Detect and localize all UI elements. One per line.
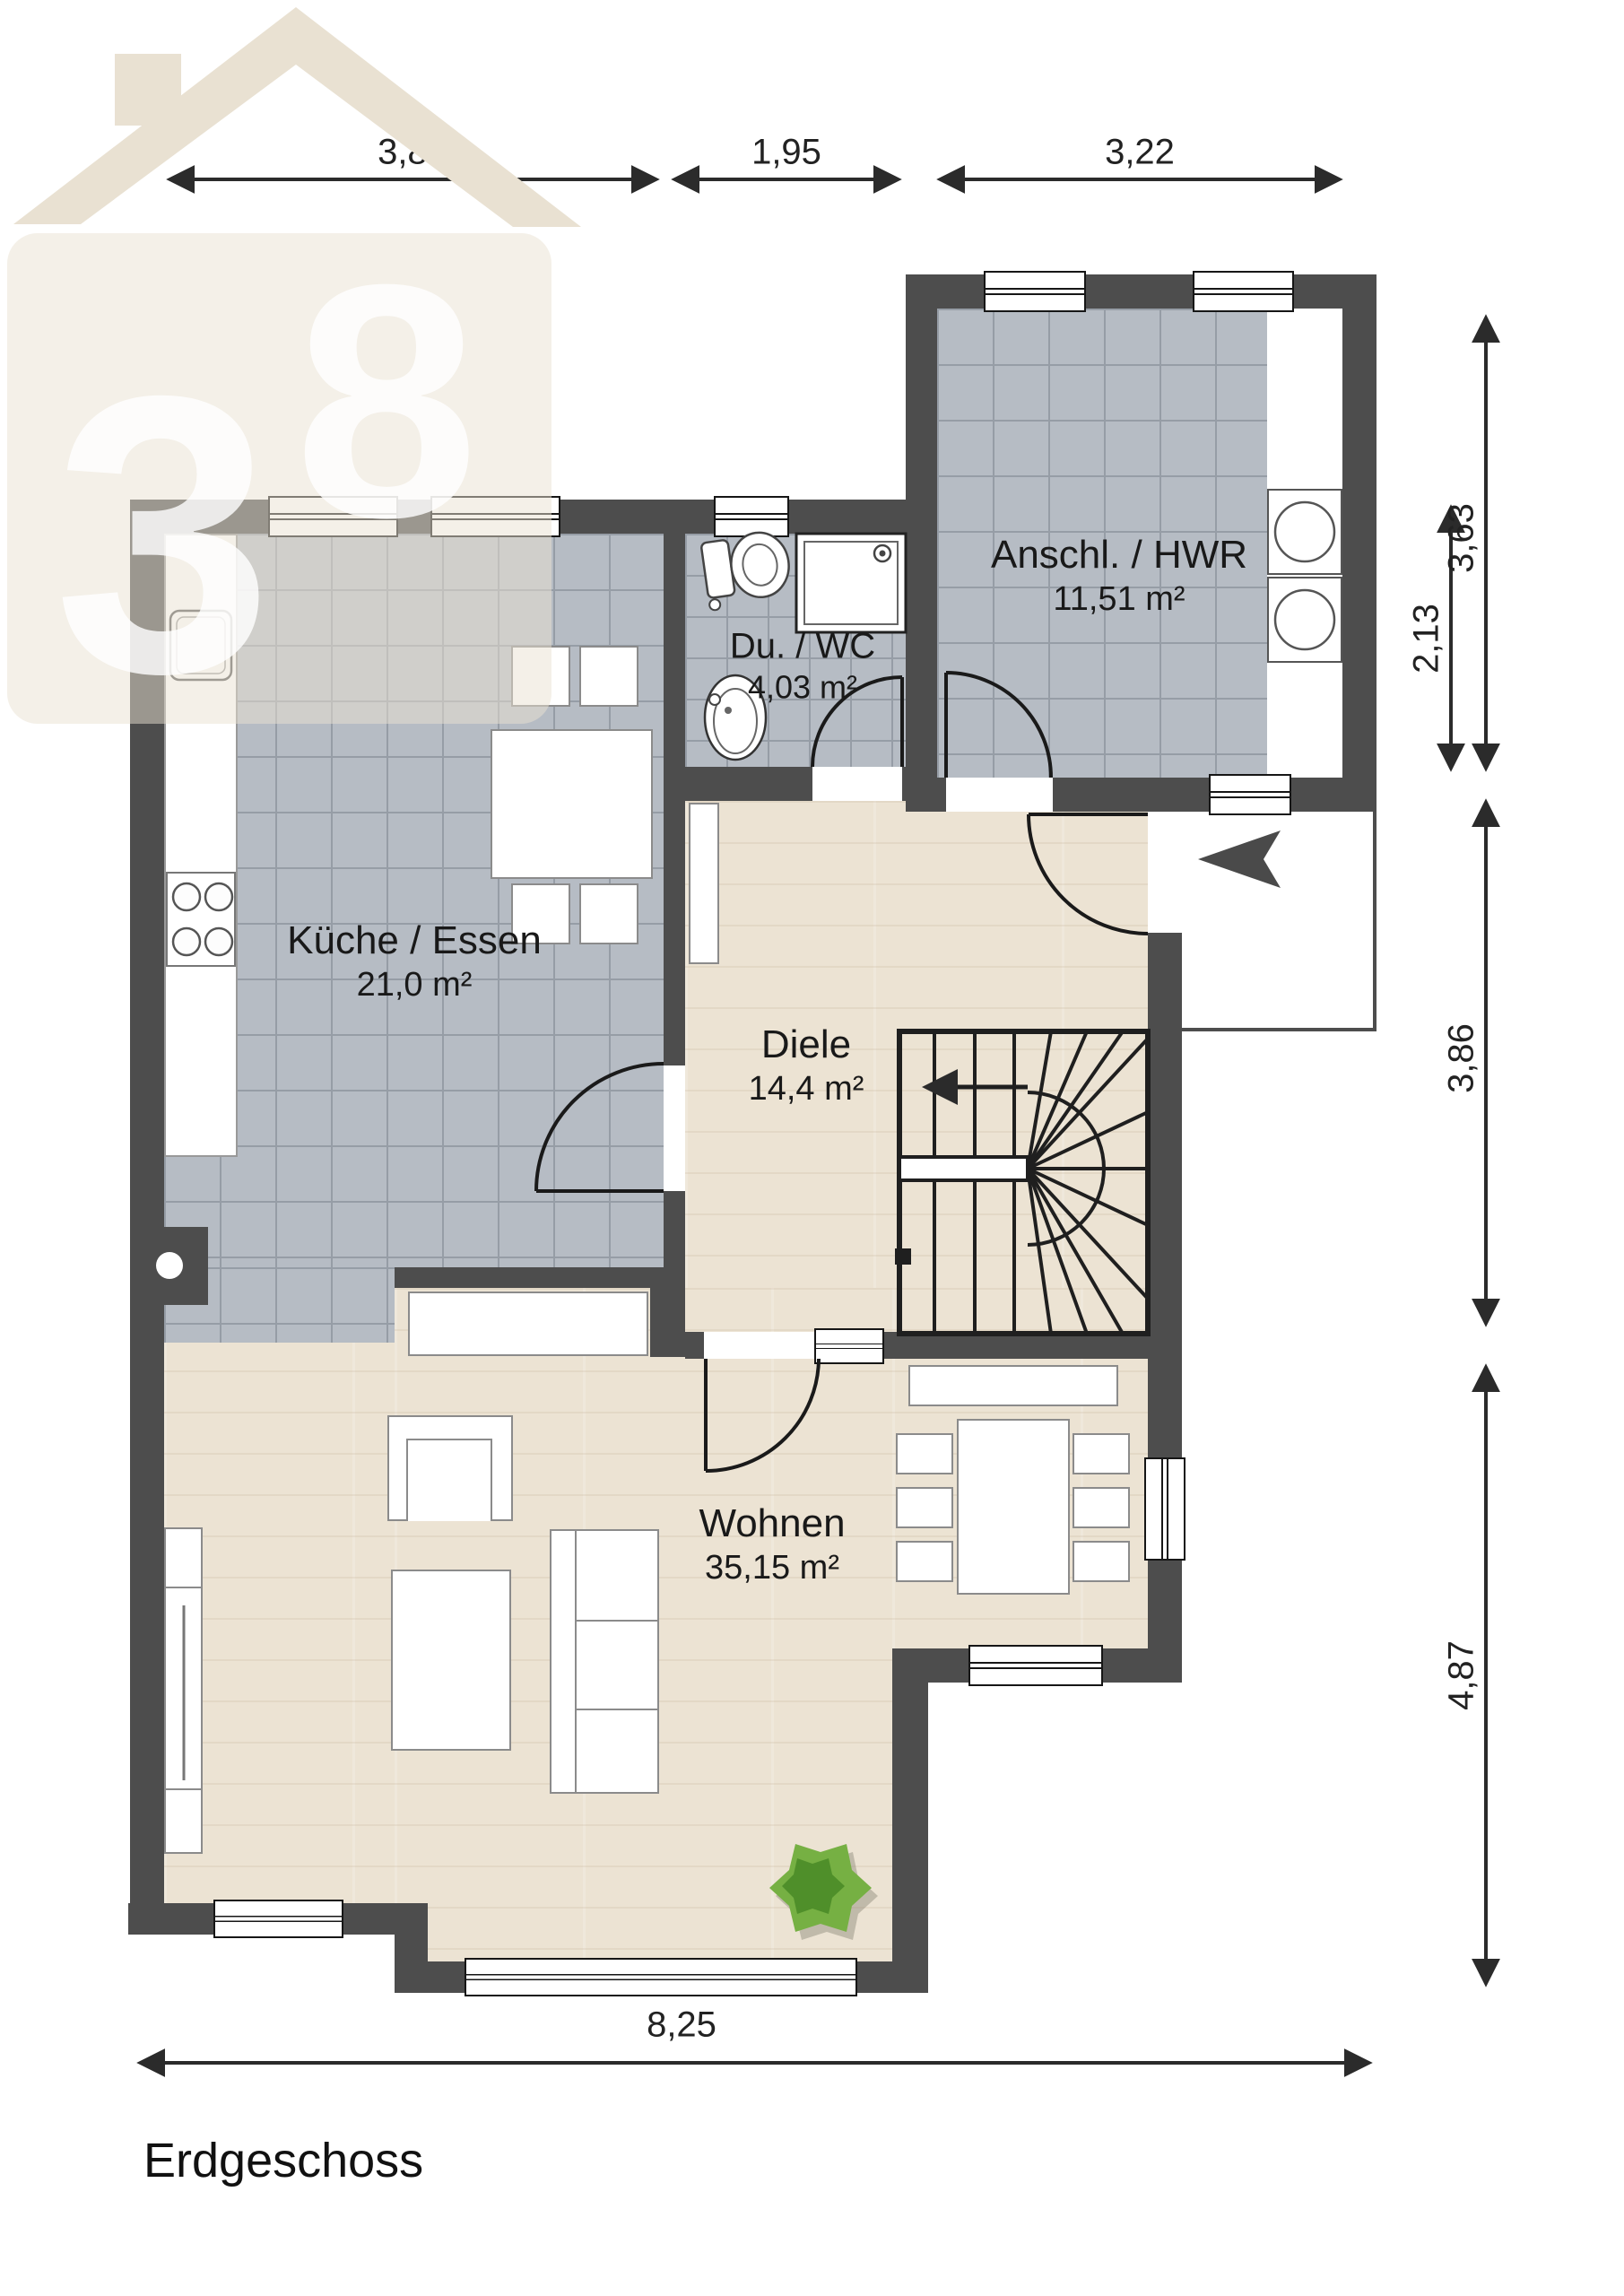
door-gap-wohnen [704, 1332, 814, 1359]
window-wohnen-bottom-right [968, 1645, 1103, 1686]
fireplace-inner [406, 1439, 492, 1521]
room-name: Diele [749, 1022, 864, 1069]
dim-label-right-2: 2,13 [1407, 604, 1447, 674]
wohnen-sideboard-stairs [908, 1365, 1118, 1406]
wall-kitchen-bottom [395, 1267, 664, 1288]
dim-label-right-3: 3,86 [1442, 1023, 1482, 1093]
dim-label-bottom: 8,25 [647, 2005, 716, 2046]
window-hwr-2 [1193, 271, 1294, 312]
door-gap-entry [1148, 812, 1182, 933]
dining-chair [896, 1433, 953, 1474]
coffee-table [391, 1570, 511, 1751]
dining-chair [1073, 1541, 1130, 1582]
floor-plan-page: Küche / Essen 21,0 m² Du. / WC 4,03 m² A… [0, 0, 1624, 2296]
dining-table [957, 1419, 1070, 1595]
dining-chair [896, 1487, 953, 1528]
door-gap-wc [812, 767, 902, 801]
kitchen-table [491, 729, 653, 879]
kitchen-chair [579, 646, 638, 707]
room-label-wc: Du. / WC 4,03 m² [730, 624, 875, 706]
dining-chair [896, 1541, 953, 1582]
window-wc [714, 496, 789, 537]
room-area: 21,0 m² [287, 965, 542, 1006]
wohnen-sideboard-top [408, 1291, 648, 1356]
window-terrace [465, 1958, 857, 1996]
window-wohnen-right [1144, 1457, 1185, 1561]
room-label-kueche: Küche / Essen 21,0 m² [287, 918, 542, 1005]
window-hwr-bottom [1209, 774, 1291, 815]
kitchen-counter [164, 534, 238, 1157]
room-name: Du. / WC [730, 624, 875, 667]
room-area: 14,4 m² [749, 1069, 864, 1110]
wall-hwr-right [1342, 274, 1376, 812]
dining-chair [1073, 1433, 1130, 1474]
room-name: Wohnen [699, 1500, 845, 1548]
washer [1267, 489, 1342, 575]
page-title: Erdgeschoss [143, 2133, 423, 2188]
room-label-diele: Diele 14,4 m² [749, 1022, 864, 1109]
room-area: 35,15 m² [699, 1548, 845, 1589]
room-name: Küche / Essen [287, 918, 542, 965]
window-hwr-1 [984, 271, 1086, 312]
dryer [1267, 577, 1342, 663]
kitchen-chair [579, 883, 638, 944]
sofa [550, 1529, 659, 1794]
chimney-block [130, 1227, 208, 1305]
dim-label-top-2: 1,95 [751, 133, 821, 173]
dim-label-right-4: 4,87 [1442, 1640, 1482, 1710]
wall-wc-hwr [906, 274, 937, 812]
door-gap-hwr [946, 778, 1053, 812]
diele-wardrobe [689, 803, 719, 964]
dim-label-right-1: 3,63 [1442, 503, 1482, 573]
entry-porch [1182, 812, 1376, 1031]
room-label-wohnen: Wohnen 35,15 m² [699, 1500, 845, 1588]
room-label-hwr: Anschl. / HWR 11,51 m² [991, 532, 1247, 620]
wall-hwr-top [906, 274, 1376, 309]
wall-step-right [892, 1683, 928, 1993]
dim-label-top-1: 3,81 [378, 133, 447, 173]
watermark-roof-icon [13, 7, 581, 227]
window-kitchen-2 [430, 496, 560, 537]
dining-chair [1073, 1487, 1130, 1528]
tv-sideboard-left [164, 1527, 203, 1854]
room-area: 11,51 m² [991, 579, 1247, 621]
window-wohnen-bottom-left [213, 1900, 343, 1938]
dim-label-top-3: 3,22 [1105, 133, 1175, 173]
room-area: 4,03 m² [730, 667, 875, 706]
wall-left [130, 500, 164, 1935]
door-gap-kitchen [664, 1065, 685, 1191]
sill-diele-wohnen [814, 1328, 884, 1364]
window-kitchen-1 [268, 496, 398, 537]
room-name: Anschl. / HWR [991, 532, 1247, 579]
kitchen-chair [511, 646, 570, 707]
